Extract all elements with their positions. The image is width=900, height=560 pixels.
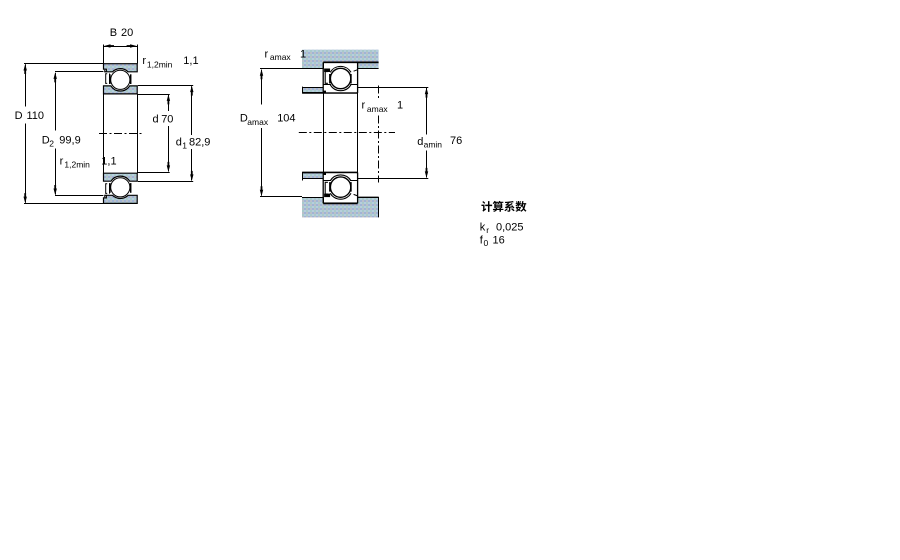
svg-text:82,9: 82,9 xyxy=(189,137,210,149)
svg-text:r: r xyxy=(60,155,64,167)
svg-text:r: r xyxy=(362,100,366,112)
svg-text:0,025: 0,025 xyxy=(496,221,524,233)
svg-text:r: r xyxy=(142,55,146,67)
svg-text:104: 104 xyxy=(277,112,295,124)
svg-text:16: 16 xyxy=(493,234,505,246)
svg-text:1,2min: 1,2min xyxy=(147,59,173,69)
svg-text:1,1: 1,1 xyxy=(183,55,198,67)
svg-text:r: r xyxy=(265,48,269,60)
svg-text:r: r xyxy=(486,225,489,235)
svg-text:1: 1 xyxy=(397,100,403,112)
svg-text:k: k xyxy=(480,221,486,233)
svg-text:amax: amax xyxy=(367,104,389,114)
svg-text:70: 70 xyxy=(161,113,173,125)
svg-text:1: 1 xyxy=(300,48,306,60)
svg-text:D: D xyxy=(15,110,23,122)
svg-text:20: 20 xyxy=(121,27,133,39)
svg-text:amax: amax xyxy=(270,52,292,62)
svg-text:110: 110 xyxy=(27,110,45,122)
svg-text:d: d xyxy=(153,113,159,125)
svg-text:76: 76 xyxy=(450,135,462,147)
svg-text:1,1: 1,1 xyxy=(101,155,116,167)
svg-text:d: d xyxy=(417,136,423,148)
svg-text:1,2min: 1,2min xyxy=(64,159,90,169)
svg-text:2: 2 xyxy=(49,138,54,148)
svg-text:d: d xyxy=(176,137,182,149)
svg-text:1: 1 xyxy=(182,140,187,150)
svg-text:B: B xyxy=(110,27,117,39)
svg-text:0: 0 xyxy=(484,238,489,248)
svg-text:99,9: 99,9 xyxy=(59,135,80,147)
svg-text:amin: amin xyxy=(424,139,443,149)
svg-text:amax: amax xyxy=(247,117,269,127)
